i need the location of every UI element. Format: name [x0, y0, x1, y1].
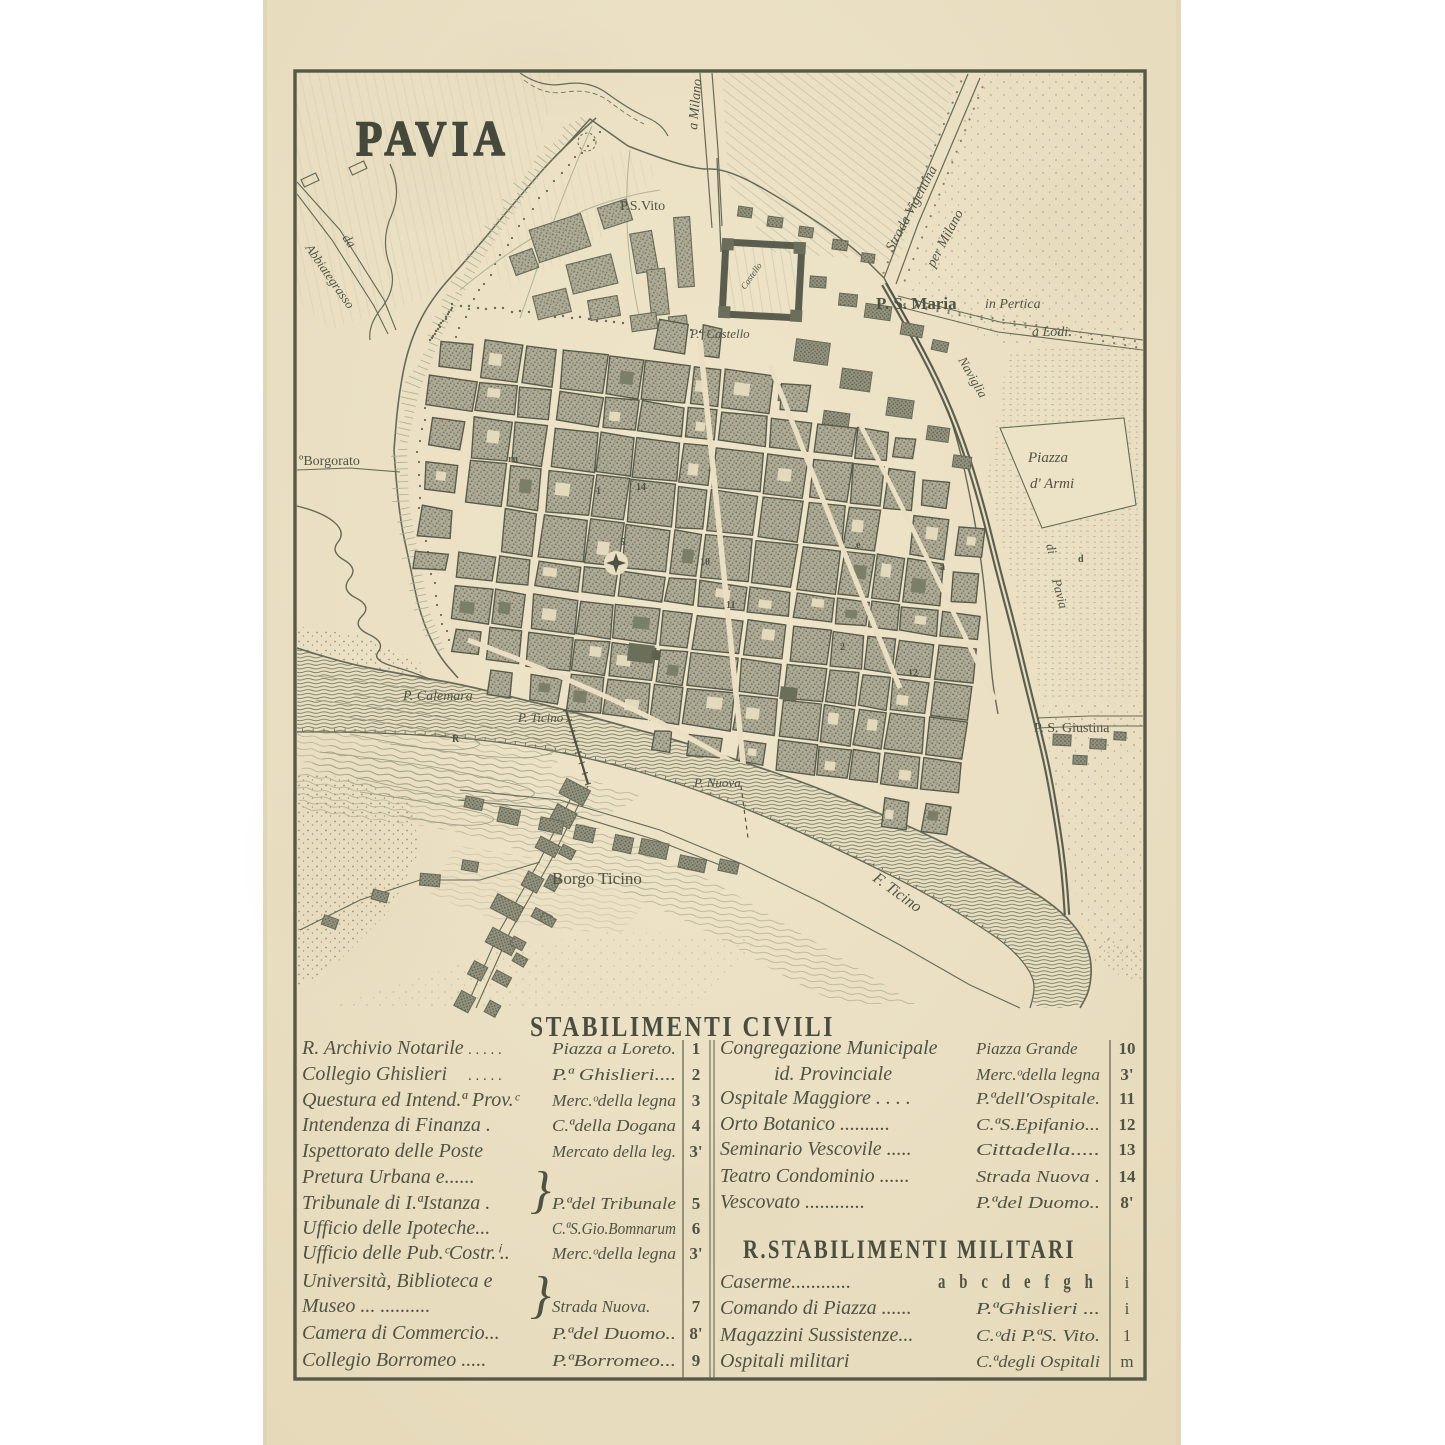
svg-text:P.ª Castello: P.ª Castello	[689, 326, 750, 341]
svg-text:P.ª Ghislieri....: P.ª Ghislieri....	[551, 1065, 676, 1084]
svg-text:14: 14	[1119, 1167, 1137, 1186]
svg-text:10: 10	[1119, 1039, 1136, 1058]
svg-text:Museo ... ..........: Museo ... ..........	[301, 1295, 430, 1317]
svg-text:. . . . .: . . . . .	[468, 1068, 502, 1084]
svg-text:Caserme............: Caserme............	[720, 1271, 851, 1293]
svg-text:Strada Nuova .: Strada Nuova .	[976, 1167, 1100, 1186]
svg-text:1: 1	[1123, 1326, 1132, 1345]
svg-text:12: 12	[908, 668, 918, 679]
svg-text:i: i	[1125, 1299, 1130, 1318]
svg-text:ºBorgorato: ºBorgorato	[299, 454, 360, 469]
svg-text:11: 11	[1119, 1089, 1135, 1108]
svg-text:Magazzini Sussistenze...: Magazzini Sussistenze...	[719, 1324, 913, 1346]
svg-text:7: 7	[692, 1297, 701, 1316]
svg-text:Seminario Vescovile .....: Seminario Vescovile .....	[720, 1138, 912, 1160]
svg-text:Ufficio delle Ipoteche...: Ufficio delle Ipoteche...	[302, 1217, 490, 1239]
svg-text:Ospitale Maggiore . . . .: Ospitale Maggiore . . . .	[720, 1087, 911, 1109]
svg-text:Merc.ᵒdella legna: Merc.ᵒdella legna	[551, 1091, 676, 1110]
svg-text:PAVIA: PAVIA	[356, 110, 510, 166]
svg-text:d' Armi: d' Armi	[1030, 476, 1074, 492]
svg-text:. . . . .: . . . . .	[468, 1042, 502, 1058]
svg-text:P. Calemara: P. Calemara	[402, 689, 473, 704]
svg-text:m: m	[1120, 1352, 1133, 1371]
svg-text:6: 6	[692, 1219, 701, 1238]
svg-text:a b c d e f g h: a b c d e f g h	[938, 1271, 1098, 1293]
svg-text:Tribunale di I.ªIstanza .: Tribunale di I.ªIstanza .	[302, 1192, 490, 1214]
svg-text:Ospitali militari: Ospitali militari	[720, 1350, 849, 1372]
svg-text:Congregazione Municipale: Congregazione Municipale	[720, 1037, 938, 1059]
svg-text:C.ªdegli Ospitali: C.ªdegli Ospitali	[976, 1352, 1100, 1371]
svg-text:Piazza a Loreto.: Piazza a Loreto.	[551, 1039, 676, 1058]
svg-text:Borgo Ticino: Borgo Ticino	[552, 869, 642, 888]
svg-text:}: }	[530, 1267, 551, 1324]
svg-text:Camera di Commercio...: Camera di Commercio...	[302, 1322, 500, 1344]
svg-text:P.ªdell'Ospitale.: P.ªdell'Ospitale.	[975, 1089, 1100, 1108]
svg-text:5: 5	[620, 537, 625, 548]
svg-text:4: 4	[692, 1116, 701, 1135]
svg-text:Intendenza di Finanza .: Intendenza di Finanza .	[301, 1114, 491, 1136]
svg-text:e: e	[856, 540, 861, 551]
svg-text:P. Nuova: P. Nuova	[693, 775, 741, 790]
svg-text:1: 1	[692, 1039, 701, 1058]
svg-text:Comando di Piazza ......: Comando di Piazza ......	[720, 1297, 912, 1319]
svg-text:C.ªdella Dogana: C.ªdella Dogana	[552, 1116, 676, 1135]
svg-text:P.ªBorromeo...: P.ªBorromeo...	[551, 1351, 676, 1370]
svg-text:11: 11	[726, 600, 735, 611]
svg-text:2: 2	[840, 642, 845, 653]
svg-text:Merc.ᵒdella legna: Merc.ᵒdella legna	[975, 1065, 1100, 1084]
svg-text:C.ªS.Gio.Bomnarum: C.ªS.Gio.Bomnarum	[552, 1219, 676, 1238]
svg-text:d: d	[1078, 554, 1084, 565]
svg-text:id. Provinciale: id. Provinciale	[774, 1063, 892, 1085]
svg-text:Collegio Ghislieri: Collegio Ghislieri	[302, 1063, 447, 1085]
svg-text:P. Ticino: P. Ticino	[517, 710, 564, 725]
svg-text:3': 3'	[689, 1142, 702, 1161]
svg-text:Merc.ᵒdella legna: Merc.ᵒdella legna	[551, 1244, 676, 1263]
svg-text:P.ªGhislieri ...: P.ªGhislieri ...	[975, 1299, 1100, 1318]
svg-text:P. S. Giustina: P. S. Giustina	[1034, 721, 1110, 736]
svg-text:Piazza: Piazza	[1027, 450, 1068, 466]
svg-text:a Lodi.: a Lodi.	[1032, 325, 1072, 340]
svg-text:P.ªdel Duomo..: P.ªdel Duomo..	[975, 1193, 1100, 1212]
svg-text:Università, Biblioteca e: Università, Biblioteca e	[302, 1270, 493, 1292]
svg-text:Cittadella.....: Cittadella.....	[976, 1140, 1100, 1159]
svg-text:5: 5	[692, 1194, 701, 1213]
svg-text:Teatro Condominio ......: Teatro Condominio ......	[720, 1165, 910, 1187]
svg-text:Pretura Urbana e......: Pretura Urbana e......	[301, 1166, 475, 1188]
svg-text:R.STABILIMENTI MILITARI: R.STABILIMENTI MILITARI	[743, 1235, 1076, 1264]
svg-text:9: 9	[692, 1351, 701, 1370]
svg-text:C.ªS.Epifanio...: C.ªS.Epifanio...	[976, 1115, 1100, 1134]
svg-text:R: R	[452, 734, 460, 745]
svg-text:3': 3'	[1120, 1065, 1133, 1084]
svg-text:Strada Nuova.: Strada Nuova.	[552, 1297, 650, 1316]
svg-text:P.ªdel Tribunale: P.ªdel Tribunale	[551, 1194, 677, 1213]
svg-text:Mercato della leg.: Mercato della leg.	[551, 1142, 676, 1161]
svg-text:Ispettorato delle Poste: Ispettorato delle Poste	[301, 1140, 483, 1162]
svg-text:a: a	[940, 562, 945, 573]
svg-text:12: 12	[1119, 1115, 1136, 1134]
svg-text:ru: ru	[508, 454, 518, 465]
svg-text:Ufficio delle Pub.ᶜCostr.ⁱ..: Ufficio delle Pub.ᶜCostr.ⁱ..	[302, 1242, 510, 1264]
svg-text:8': 8'	[1120, 1193, 1133, 1212]
svg-text:P.S.Vito: P.S.Vito	[620, 199, 665, 214]
svg-text:R. Archivio Notarile: R. Archivio Notarile	[301, 1037, 464, 1059]
svg-text:Questura ed Intend.ª Prov.ᶜ: Questura ed Intend.ª Prov.ᶜ	[302, 1089, 521, 1111]
svg-text:Collegio Borromeo .....: Collegio Borromeo .....	[302, 1349, 486, 1371]
svg-text:10: 10	[700, 557, 710, 568]
svg-text:3: 3	[692, 1091, 701, 1110]
svg-text:14: 14	[636, 482, 646, 493]
svg-text:13: 13	[1119, 1140, 1136, 1159]
svg-text:}: }	[530, 1162, 551, 1219]
svg-text:C.ᵒdi P.ªS. Vito.: C.ᵒdi P.ªS. Vito.	[976, 1326, 1100, 1345]
svg-text:3': 3'	[689, 1244, 702, 1263]
svg-text:8': 8'	[689, 1324, 702, 1343]
svg-text:P.ªdel Duomo..: P.ªdel Duomo..	[551, 1324, 676, 1343]
svg-text:Piazza Grande: Piazza Grande	[975, 1039, 1078, 1058]
svg-text:Orto Botanico ..........: Orto Botanico ..........	[720, 1113, 890, 1135]
svg-text:1: 1	[596, 486, 601, 497]
svg-text:i: i	[1125, 1273, 1130, 1292]
svg-text:Vescovato ............: Vescovato ............	[720, 1191, 865, 1213]
svg-text:in Pertica: in Pertica	[985, 297, 1041, 312]
svg-text:2: 2	[692, 1065, 701, 1084]
svg-text:P. S. Maria: P. S. Maria	[876, 294, 957, 313]
